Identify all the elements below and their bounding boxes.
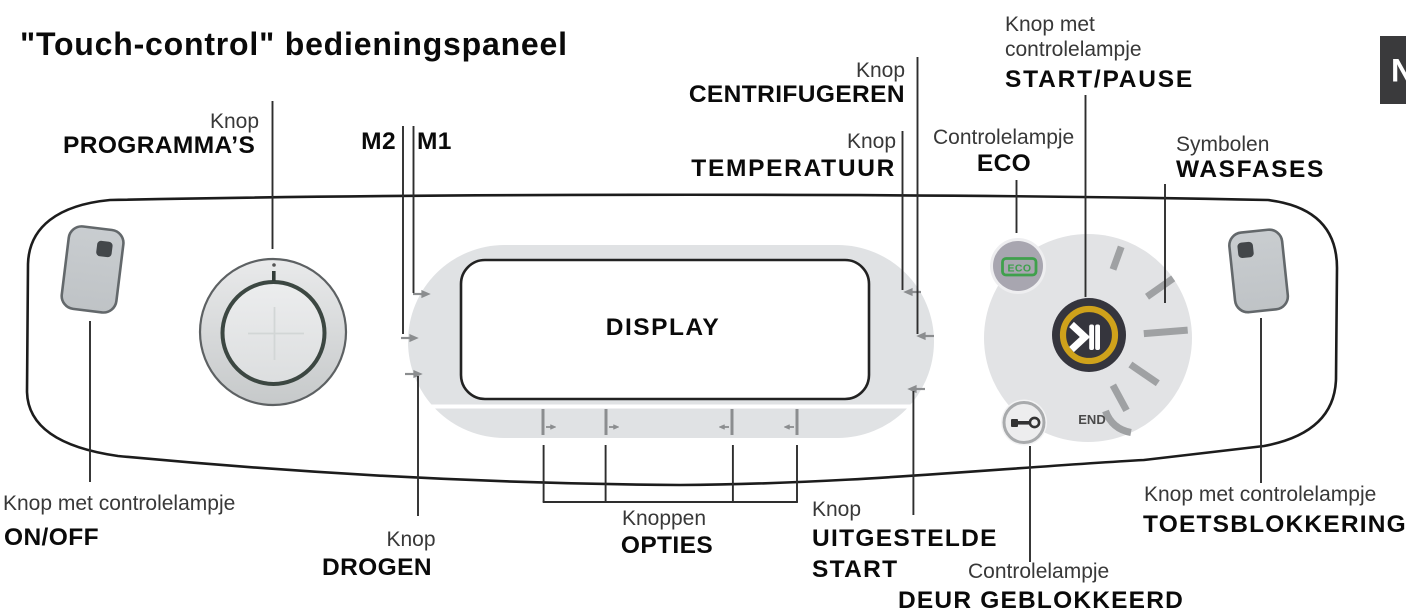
svg-text:DISPLAY: DISPLAY: [606, 314, 720, 341]
svg-text:Knop met: Knop met: [1005, 13, 1095, 36]
svg-text:ON/OFF: ON/OFF: [4, 524, 99, 551]
svg-text:Controlelampje: Controlelampje: [968, 560, 1109, 583]
svg-text:M1: M1: [417, 128, 452, 155]
svg-text:Knoppen: Knoppen: [622, 507, 706, 530]
svg-text:"Touch-control" bedieningspane: "Touch-control" bedieningspaneel: [20, 26, 568, 62]
svg-text:ECO: ECO: [977, 150, 1031, 177]
svg-text:Knop: Knop: [386, 528, 435, 551]
svg-text:Symbolen: Symbolen: [1176, 133, 1269, 156]
svg-text:Knop: Knop: [847, 130, 896, 153]
svg-text:START: START: [812, 556, 898, 583]
svg-text:Knop: Knop: [856, 59, 905, 82]
svg-text:CENTRIFUGEREN: CENTRIFUGEREN: [689, 81, 905, 108]
svg-text:Knop: Knop: [210, 110, 259, 133]
svg-text:M2: M2: [361, 128, 396, 155]
svg-text:ECO: ECO: [1008, 263, 1032, 275]
svg-text:N: N: [1391, 53, 1406, 89]
svg-text:START/PAUSE: START/PAUSE: [1005, 66, 1194, 93]
svg-text:TEMPERATUUR: TEMPERATUUR: [691, 155, 896, 182]
svg-text:controlelampje: controlelampje: [1005, 38, 1142, 61]
svg-text:PROGRAMMA’S: PROGRAMMA’S: [63, 132, 255, 159]
svg-text:DEUR GEBLOKKEERD: DEUR GEBLOKKEERD: [898, 587, 1184, 614]
svg-text:Knop met controlelampje: Knop met controlelampje: [1144, 483, 1376, 506]
svg-text:DROGEN: DROGEN: [322, 554, 432, 581]
svg-text:Knop met controlelampje: Knop met controlelampje: [3, 492, 235, 515]
svg-text:Knop: Knop: [812, 498, 861, 521]
svg-text:Controlelampje: Controlelampje: [933, 126, 1074, 149]
svg-text:WASFASES: WASFASES: [1176, 156, 1325, 183]
svg-text:OPTIES: OPTIES: [621, 532, 713, 559]
svg-text:END: END: [1078, 412, 1105, 427]
svg-text:TOETSBLOKKERING: TOETSBLOKKERING: [1143, 511, 1406, 538]
svg-text:UITGESTELDE: UITGESTELDE: [812, 525, 998, 552]
